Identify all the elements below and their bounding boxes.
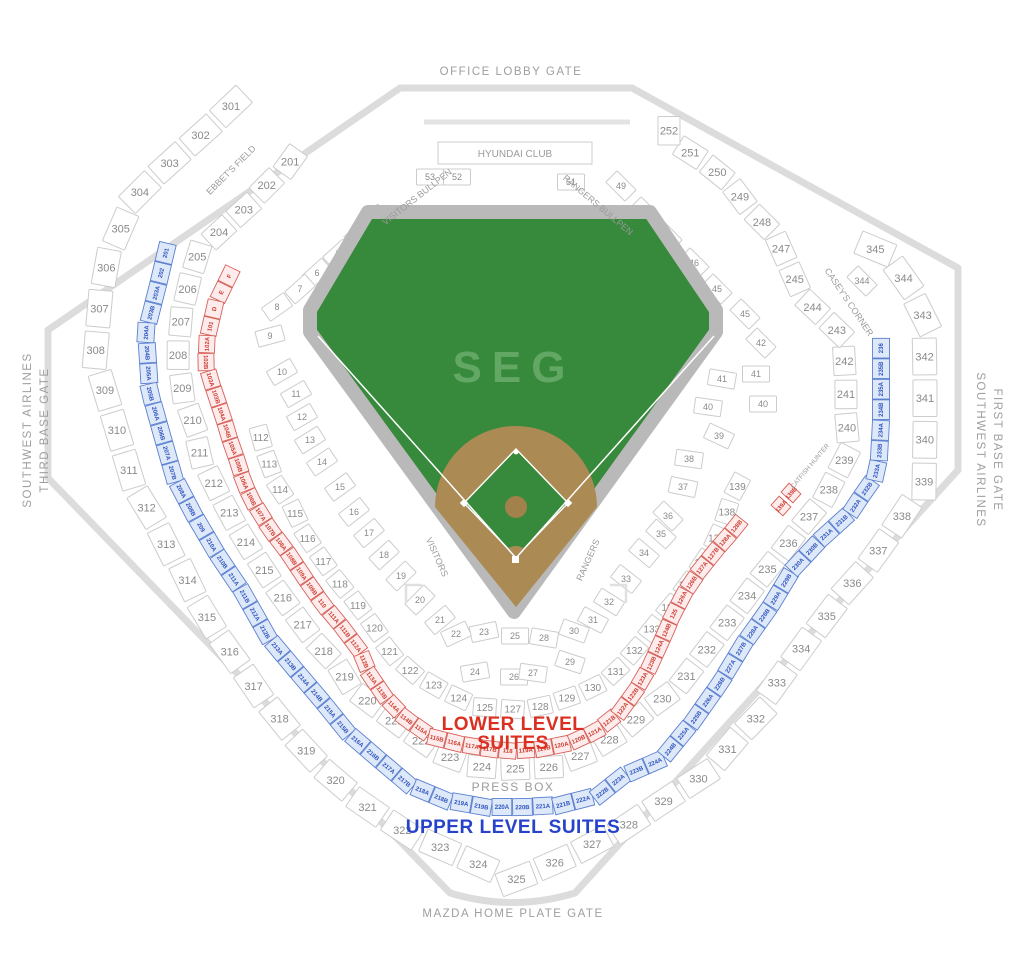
third-base-gate-line2: THIRD BASE GATE [39,367,51,492]
section-label: 18 [379,550,389,560]
section-label: 345 [866,244,884,256]
section-label: 201 [281,156,299,168]
section-label: 328 [620,819,638,831]
section-label: 31 [588,615,598,625]
section-label: 10 [277,367,287,377]
section-label: 202 [257,180,275,192]
section-label: 209 [173,383,191,395]
mazda-gate-label: MAZDA HOME PLATE GATE [422,908,603,920]
section-label: 14 [317,457,327,467]
section-label: 248 [753,217,771,229]
section-label: 216 [274,593,292,605]
lower-suites-legend-line2: SUITES [477,733,549,754]
section-label: 339 [915,476,933,488]
suite-label: 204A [144,325,151,340]
section-label: 226 [540,762,558,774]
section-label: 310 [108,425,126,437]
section-label: 323 [431,842,449,854]
section-label: 220 [358,695,376,707]
section-label: 116 [300,534,316,545]
section-label: 217 [293,620,311,632]
section-label: 36 [663,511,673,521]
suite-label: 220A [495,805,510,811]
section-label: 306 [97,262,115,274]
section-label: 113 [261,460,277,471]
suite-label: 234B [879,402,885,417]
section-label: 119 [350,601,366,612]
section-label: 6 [314,268,319,278]
section-label: 215 [255,565,273,577]
section-label: 7 [297,284,302,294]
section-label: 8 [274,302,279,312]
section-label: 16 [349,507,359,517]
section-label: 26 [509,672,519,682]
section-label: 326 [546,857,564,869]
suite-label: 204B [143,346,150,361]
section-label: 327 [583,839,601,851]
section-label: 236 [779,538,797,550]
section-label: 229 [627,714,645,726]
section-label: 29 [565,657,575,667]
section-label: 304 [131,187,149,199]
section-label: 123 [425,681,442,692]
section-label: 124 [450,693,467,704]
section-label: 40 [758,399,768,409]
section-label: 302 [191,130,209,142]
first-base-gate-line2: FIRST BASE GATE [991,388,1003,511]
section-label: 37 [678,482,688,492]
section-label: 49 [616,181,626,191]
press-box-label: PRESS BOX [472,780,555,794]
section-label: 120 [366,623,383,634]
section-label: 321 [358,802,376,814]
section-label: 19 [396,571,406,581]
section-label: 330 [689,773,707,785]
section-label: 15 [335,482,345,492]
section-label: 230 [653,694,671,706]
section-label: 45 [740,309,750,319]
section-label: 337 [869,545,887,557]
section-label: 129 [559,694,576,705]
section-label: 122 [402,666,419,677]
section-label: 301 [222,101,240,113]
suite-label: 234A [878,422,885,437]
suite-label: 236 [879,343,885,354]
stadium-map-svg: 3013023033043053063073083093103113123133… [0,0,1024,952]
section-label: 212 [204,478,222,490]
section-label: 224 [473,762,491,774]
section-label: 25 [510,631,520,641]
section-label: 28 [539,633,549,643]
section-label: 231 [677,671,695,683]
section-label: 344 [854,276,869,286]
section-label: 41 [717,374,727,384]
section-label: 35 [656,529,666,539]
section-label: 210 [183,415,201,427]
section-label: 214 [237,537,255,549]
section-label: 223 [441,752,459,764]
office-lobby-gate-label: OFFICE LOBBY GATE [440,66,583,78]
section-label: 121 [381,647,398,658]
section-label: 247 [772,244,790,256]
section-label: 131 [607,667,624,678]
hyundai-club-label: HYUNDAI CLUB [478,149,553,160]
section-label: 250 [708,167,726,179]
second-base [514,450,519,455]
section-label: 45 [712,284,722,294]
section-label: 335 [818,611,836,623]
section-label: 333 [768,678,786,690]
section-label: 233 [718,618,736,630]
section-label: 342 [915,351,933,363]
section-label: 334 [792,644,810,656]
section-label: 238 [820,485,838,497]
section-label: 218 [314,646,332,658]
section-label: 139 [729,482,746,493]
section-label: 336 [843,578,861,590]
suite-label: 102A [205,336,212,351]
section-label: 22 [451,629,461,639]
section-label: 39 [714,431,724,441]
section-label: 41 [751,369,761,379]
section-label: 324 [469,859,487,871]
section-label: 204 [210,227,228,239]
section-label: 33 [621,574,631,584]
section-label: 203 [235,205,253,217]
section-label: 225 [506,764,524,776]
section-label: 130 [584,683,601,694]
section-label: 307 [90,303,108,315]
section-label: 305 [112,223,130,235]
section-label: 314 [178,575,196,587]
suite-label: 220B [515,805,530,811]
section-label: 312 [137,502,155,514]
section-label: 23 [479,627,489,637]
section-label: 52 [452,172,462,182]
upper-suites-legend: UPPER LEVEL SUITES [406,817,621,838]
section-label: 208 [169,350,187,362]
section-label: 32 [604,597,614,607]
section-label: 24 [470,667,480,677]
section-label: 309 [96,385,114,397]
section-label: 38 [684,454,694,464]
suite-label: 205A [144,366,151,381]
section-label: 34 [639,548,649,558]
section-label: 311 [120,465,138,477]
section-label: 316 [221,647,239,659]
section-label: 112 [253,433,269,444]
section-label: 211 [191,448,209,460]
section-label: 320 [326,775,344,787]
section-label: 313 [157,539,175,551]
section-label: 17 [364,528,374,538]
section-label: 245 [786,274,804,286]
section-label: 11 [291,389,300,399]
section-label: 319 [297,746,315,758]
section-label: 13 [305,435,315,445]
section-label: 30 [569,626,579,636]
section-label: 40 [703,402,713,412]
section-label: 243 [828,325,846,337]
section-label: 239 [835,455,853,467]
section-label: 244 [803,302,821,314]
section-label: 132 [626,646,643,657]
suite-label: 221A [536,804,551,811]
section-label: 325 [507,874,525,886]
stadium-seating-map: 3013023033043053063073083093103113123133… [0,0,1024,952]
lower-suites-legend-line1: LOWER LEVEL [442,714,585,735]
section-label: 315 [198,612,216,624]
first-base-gate-line1: SOUTHWEST AIRLINES [974,372,986,527]
section-label: 303 [160,158,178,170]
section-label: 114 [272,485,288,496]
section-label: 12 [297,412,307,422]
section-label: 207 [172,317,190,329]
section-label: 240 [838,423,856,435]
suite-label: 235B [879,361,885,376]
field-logo: SEG [453,343,576,392]
third-base-gate-line1: SOUTHWEST AIRLINES [22,352,34,507]
section-label: 27 [528,668,538,678]
section-label: 115 [287,509,303,520]
section-label: 331 [718,744,736,756]
section-label: 234 [738,591,756,603]
section-label: 235 [758,564,776,576]
section-label: 205 [188,252,206,264]
section-label: 237 [800,512,818,524]
section-label: 213 [220,508,238,520]
section-label: 21 [435,615,445,625]
section-label: 42 [756,338,766,348]
section-label: 329 [654,796,672,808]
section-label: 249 [731,192,749,204]
section-label: 318 [270,713,288,725]
section-label: 219 [335,672,353,684]
section-label: 338 [893,511,911,523]
pitchers-mound [505,496,527,518]
section-label: 341 [916,393,934,405]
section-label: 128 [532,702,549,713]
section-label: 232 [698,644,716,656]
section-label: 117 [315,557,331,568]
section-label: 344 [894,273,912,285]
section-label: 206 [178,284,196,296]
section-label: 251 [681,147,699,159]
section-label: 241 [837,389,855,401]
suite-label: 235A [879,381,885,396]
section-label: 125 [476,703,493,714]
section-label: 332 [747,713,765,725]
section-label: 308 [87,345,105,357]
section-label: 343 [913,310,931,322]
section-label: 118 [332,579,348,590]
section-label: 242 [835,356,853,368]
home-plate [512,556,519,563]
section-label: 317 [244,681,262,693]
section-label: 252 [660,126,678,138]
section-label: 9 [267,331,272,341]
section-label: 227 [571,751,589,763]
suite-label: 233B [877,443,884,458]
section-label: 340 [916,435,934,447]
suite-label: 102B [202,355,208,370]
section-label: 20 [415,595,425,605]
